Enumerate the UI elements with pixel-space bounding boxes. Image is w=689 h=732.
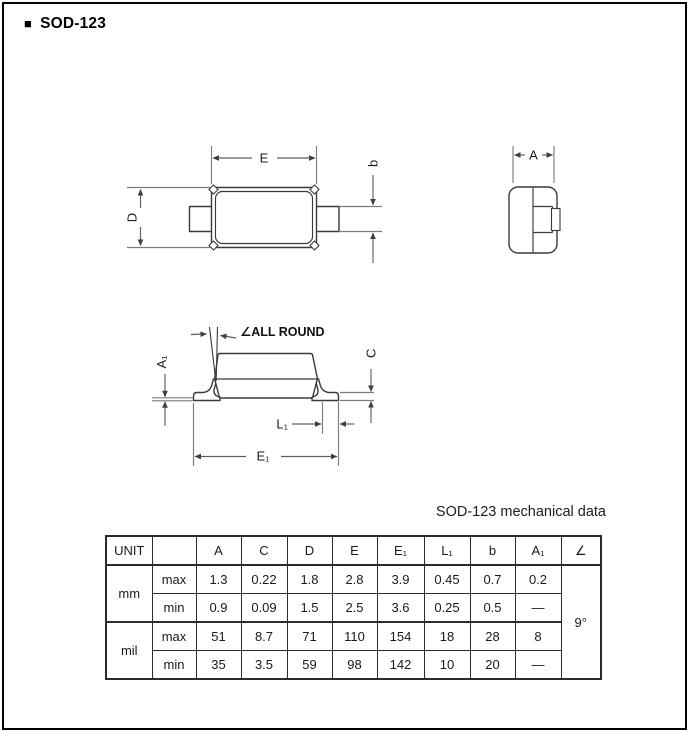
value-cell: 0.5 — [470, 594, 515, 623]
mechanical-data-table: UNIT A C D E E₁ L₁ b A₁ ∠ mm max 1.3 0.2… — [105, 535, 602, 680]
header-L1: L₁ — [424, 536, 470, 565]
value-cell: 2.8 — [332, 565, 377, 594]
end-view-lead-tip — [552, 209, 561, 231]
bound-cell: min — [152, 651, 196, 680]
value-cell: 142 — [377, 651, 424, 680]
draft-angle-lines — [210, 327, 218, 381]
angle-value-cell: 9° — [561, 565, 601, 679]
all-round-callout-label: ∠ALL ROUND — [240, 325, 325, 339]
draft-angle-arrow — [191, 334, 207, 335]
end-view-drawing: A — [509, 146, 560, 253]
value-cell: 20 — [470, 651, 515, 680]
header-angle: ∠ — [561, 536, 601, 565]
value-cell: 8.7 — [241, 622, 287, 651]
value-cell: 3.6 — [377, 594, 424, 623]
top-view-drawing: E D b — [125, 146, 383, 263]
value-cell: 35 — [196, 651, 241, 680]
dim-C-label: C — [364, 349, 379, 358]
header-D: D — [287, 536, 332, 565]
top-view-body — [212, 188, 317, 248]
header-unit: UNIT — [106, 536, 152, 565]
value-cell: — — [515, 594, 561, 623]
table-header-row: UNIT A C D E E₁ L₁ b A₁ ∠ — [106, 536, 601, 565]
header-E1: E₁ — [377, 536, 424, 565]
value-cell: — — [515, 651, 561, 680]
top-view-left-lead — [190, 207, 213, 232]
value-cell: 18 — [424, 622, 470, 651]
side-view-body — [215, 354, 318, 399]
value-cell: 0.22 — [241, 565, 287, 594]
header-b: b — [470, 536, 515, 565]
value-cell: 8 — [515, 622, 561, 651]
value-cell: 154 — [377, 622, 424, 651]
top-view-right-lead — [316, 207, 339, 232]
header-A1: A₁ — [515, 536, 561, 565]
value-cell: 71 — [287, 622, 332, 651]
bound-cell: max — [152, 622, 196, 651]
dim-E-label: E — [260, 151, 269, 166]
bound-cell: max — [152, 565, 196, 594]
value-cell: 1.8 — [287, 565, 332, 594]
bound-cell: min — [152, 594, 196, 623]
value-cell: 110 — [332, 622, 377, 651]
value-cell: 1.3 — [196, 565, 241, 594]
lead-thickness-lines-right — [340, 393, 374, 401]
header-A: A — [196, 536, 241, 565]
dim-E1-label: E₁ — [256, 449, 270, 464]
value-cell: 1.5 — [287, 594, 332, 623]
value-cell: 28 — [470, 622, 515, 651]
seating-plane-lines-left — [152, 398, 193, 401]
dim-A-label: A — [529, 148, 538, 163]
table-row: mil max 51 8.7 71 110 154 18 28 8 — [106, 622, 601, 651]
table-row: min 0.9 0.09 1.5 2.5 3.6 0.25 0.5 — — [106, 594, 601, 623]
value-cell: 0.25 — [424, 594, 470, 623]
value-cell: 0.7 — [470, 565, 515, 594]
dim-L1-label: L₁ — [276, 417, 288, 432]
draft-angle-arrow — [221, 336, 237, 339]
dim-A1-label: A₁ — [154, 355, 169, 369]
dim-b-extension-lines — [339, 207, 382, 232]
value-cell: 51 — [196, 622, 241, 651]
table-row: mm max 1.3 0.22 1.8 2.8 3.9 0.45 0.7 0.2… — [106, 565, 601, 594]
value-cell: 0.9 — [196, 594, 241, 623]
value-cell: 2.5 — [332, 594, 377, 623]
mechanical-drawings: E D b A — [0, 0, 689, 500]
value-cell: 0.09 — [241, 594, 287, 623]
table-title: SOD-123 mechanical data — [105, 504, 606, 520]
header-E: E — [332, 536, 377, 565]
header-blank — [152, 536, 196, 565]
header-C: C — [241, 536, 287, 565]
dim-b-label: b — [366, 160, 381, 167]
value-cell: 59 — [287, 651, 332, 680]
table-row: min 35 3.5 59 98 142 10 20 — — [106, 651, 601, 680]
value-cell: 0.2 — [515, 565, 561, 594]
value-cell: 3.9 — [377, 565, 424, 594]
side-view-drawing: ∠ALL ROUND A₁ C L₁ E₁ — [152, 325, 379, 466]
value-cell: 3.5 — [241, 651, 287, 680]
dim-D-label: D — [125, 213, 140, 222]
value-cell: 0.45 — [424, 565, 470, 594]
unit-mm-cell: mm — [106, 565, 152, 622]
value-cell: 10 — [424, 651, 470, 680]
unit-mil-cell: mil — [106, 622, 152, 679]
value-cell: 98 — [332, 651, 377, 680]
datasheet-page: ■ SOD-123 E D — [0, 0, 689, 732]
